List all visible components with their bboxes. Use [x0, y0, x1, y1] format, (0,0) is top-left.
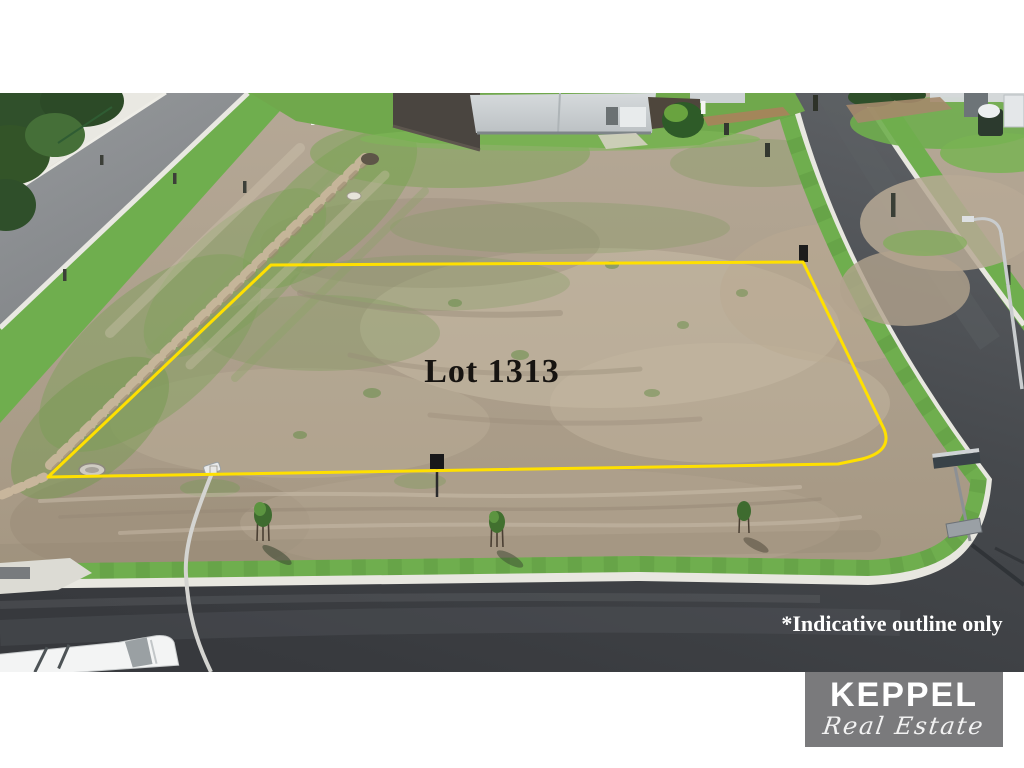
- house-door: [606, 107, 618, 125]
- aerial-photo: Lot 1313 *Indicative outline only: [0, 93, 1024, 672]
- bin-bag: [978, 104, 1000, 118]
- logo-brand-text: KEPPEL: [830, 678, 978, 712]
- mailbox-post: [701, 101, 706, 114]
- lamp-head: [962, 216, 974, 222]
- lot-label: Lot 1313: [402, 353, 582, 390]
- logo-tagline-text: Real Estate: [821, 713, 986, 741]
- keppel-logo: KEPPEL Real Estate: [805, 672, 1003, 747]
- garage-door: [620, 107, 646, 127]
- white-shed: [1004, 95, 1024, 127]
- survey-peg: [799, 245, 808, 262]
- listing-image: Lot 1313 *Indicative outline only KEPPEL…: [0, 0, 1024, 768]
- disclaimer-text: *Indicative outline only: [740, 612, 1024, 636]
